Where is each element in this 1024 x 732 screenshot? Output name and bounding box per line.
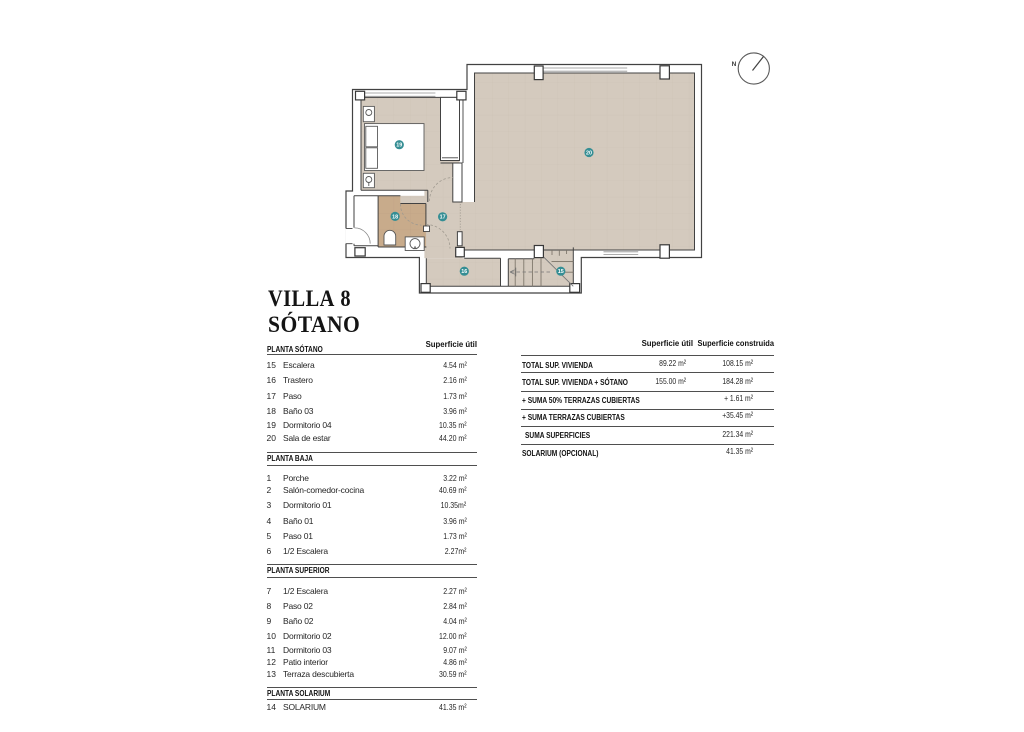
- svg-text:19: 19: [396, 143, 402, 149]
- svg-text:20: 20: [586, 150, 592, 156]
- svg-text:17: 17: [440, 215, 446, 221]
- svg-text:18: 18: [392, 214, 398, 220]
- svg-text:15: 15: [558, 269, 564, 275]
- svg-text:16: 16: [461, 269, 467, 275]
- svg-text:N: N: [732, 61, 737, 68]
